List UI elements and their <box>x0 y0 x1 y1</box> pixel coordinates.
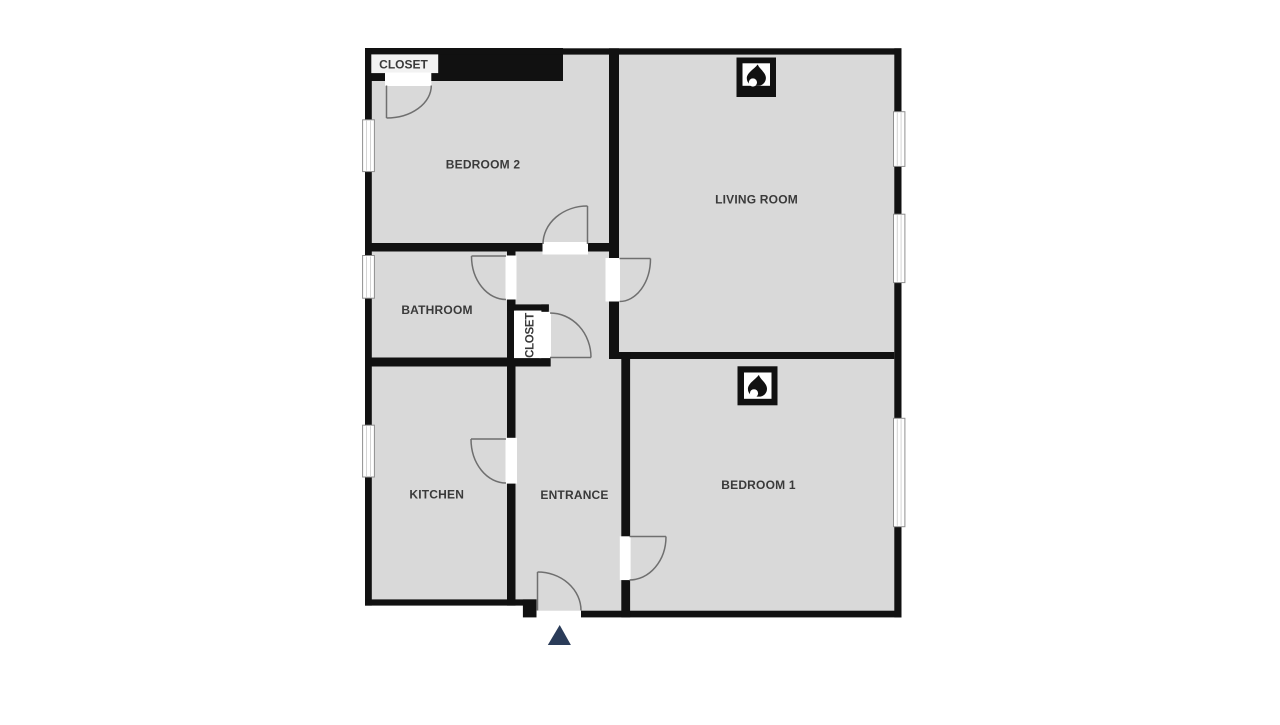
svg-text:ENTRANCE: ENTRANCE <box>540 488 608 502</box>
svg-text:LIVING ROOM: LIVING ROOM <box>715 193 798 207</box>
svg-text:CLOSET: CLOSET <box>379 58 428 72</box>
svg-text:KITCHEN: KITCHEN <box>409 488 464 502</box>
svg-text:BEDROOM 2: BEDROOM 2 <box>446 158 521 172</box>
svg-text:BATHROOM: BATHROOM <box>401 303 472 317</box>
svg-text:BEDROOM 1: BEDROOM 1 <box>721 478 796 492</box>
svg-text:CLOSET: CLOSET <box>525 313 537 358</box>
